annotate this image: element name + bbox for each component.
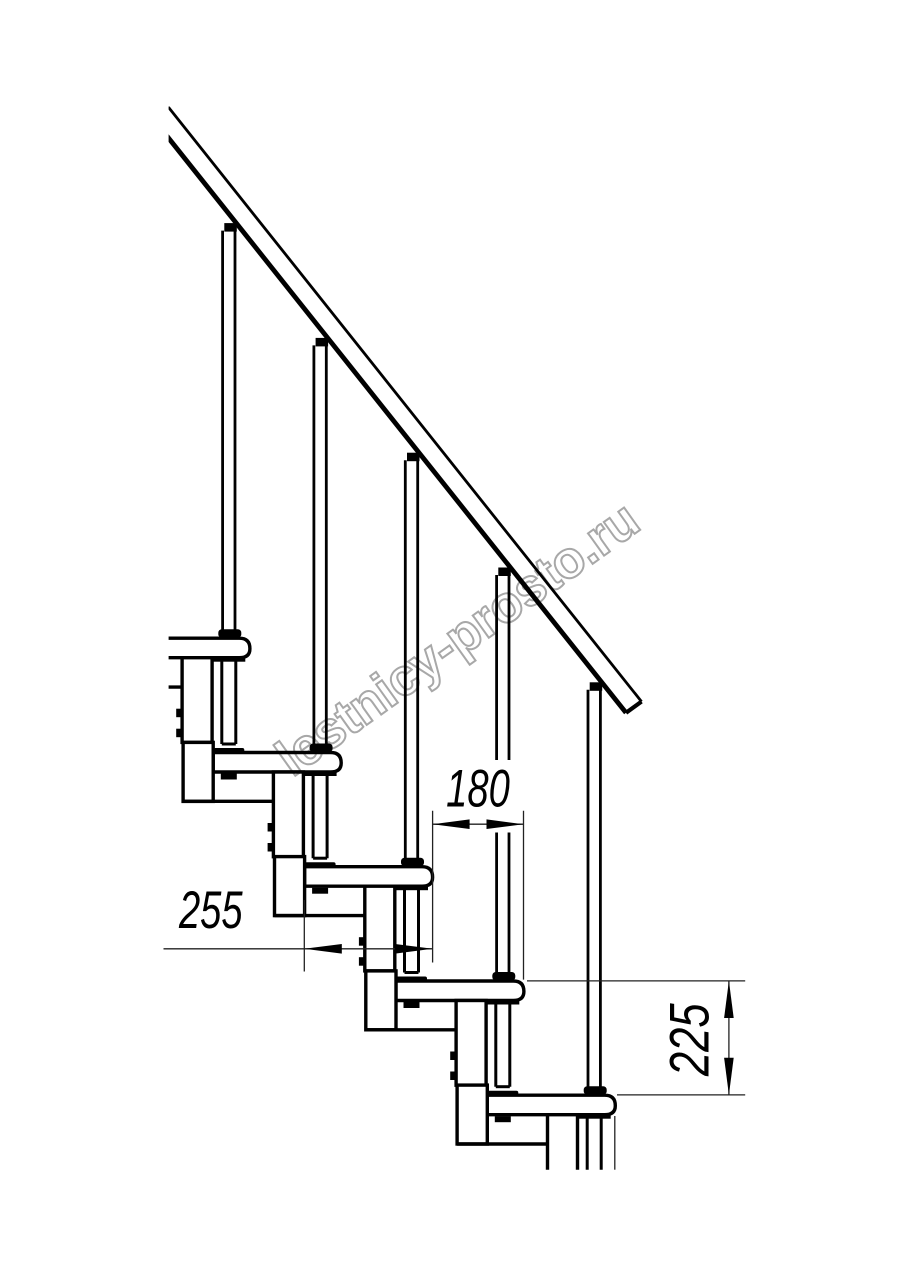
svg-text:180: 180 xyxy=(446,758,510,818)
svg-text:255: 255 xyxy=(178,880,243,940)
svg-text:225: 225 xyxy=(658,1002,720,1077)
